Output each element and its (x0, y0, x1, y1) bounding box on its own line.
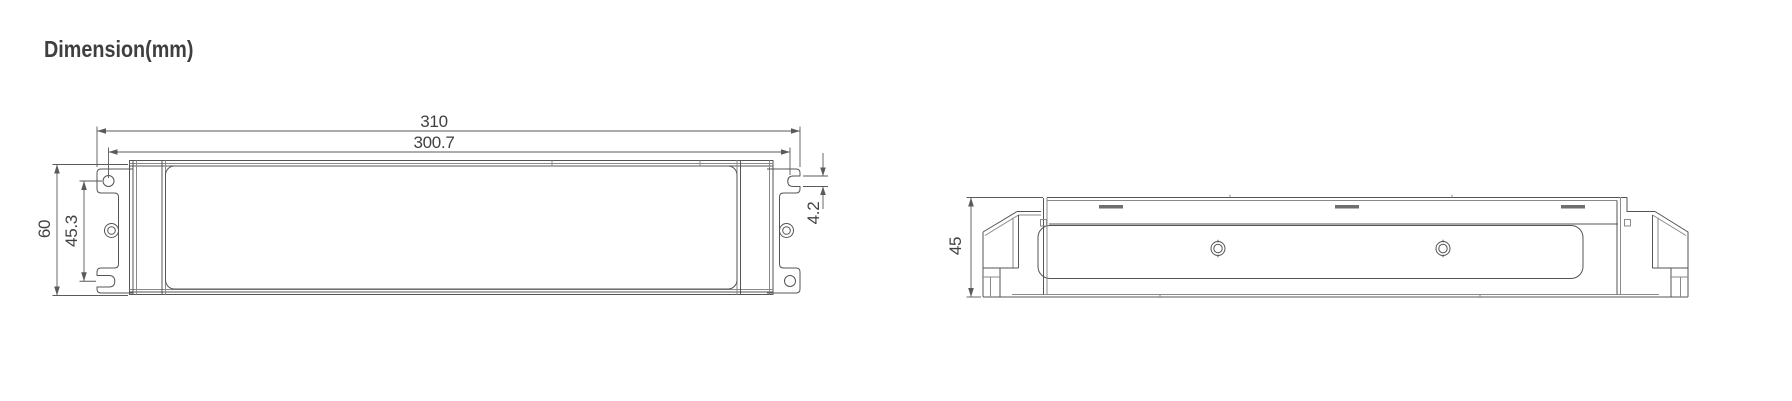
side-right-bracket (1617, 198, 1688, 298)
dim-side-height-label: 45 (946, 237, 965, 255)
side-body (983, 195, 1688, 297)
mounting-hole (785, 276, 796, 287)
side-view-drawing: 45 (946, 195, 1688, 297)
enclosure-cover (166, 166, 738, 289)
screw-head (105, 224, 119, 238)
dim-overall-height-label: 60 (35, 220, 54, 238)
vent-slot (1561, 205, 1585, 209)
dim-mount-height-label: 45.3 (62, 215, 81, 247)
screw-head (780, 224, 794, 238)
enclosure-body (130, 161, 774, 295)
vent-slot (1335, 205, 1359, 209)
clip-detail (1625, 220, 1631, 227)
dim-mount-length: 300.7 (109, 133, 791, 178)
drawing-page: Dimension(mm) (0, 0, 1792, 401)
screw-head (1436, 240, 1450, 257)
side-panel (1038, 226, 1583, 279)
dim-slot-width-label: 4.2 (804, 202, 823, 225)
dim-mount-height: 45.3 (62, 181, 102, 281)
dim-mount-length-label: 300.7 (413, 133, 454, 152)
dim-overall-height: 60 (35, 165, 128, 296)
screw-head (1211, 240, 1225, 257)
vent-slot (1099, 205, 1123, 209)
technical-drawing-canvas: 310 300.7 60 (0, 0, 1792, 401)
mounting-plate-left-ear (97, 169, 133, 293)
dim-slot-width: 4.2 (803, 153, 828, 224)
dim-overall-length-label: 310 (420, 112, 447, 131)
mounting-plate-right-ear (767, 169, 800, 293)
front-view-drawing: 310 300.7 60 (35, 112, 828, 296)
dim-side-height: 45 (946, 198, 1043, 298)
side-left-bracket (983, 198, 1047, 298)
